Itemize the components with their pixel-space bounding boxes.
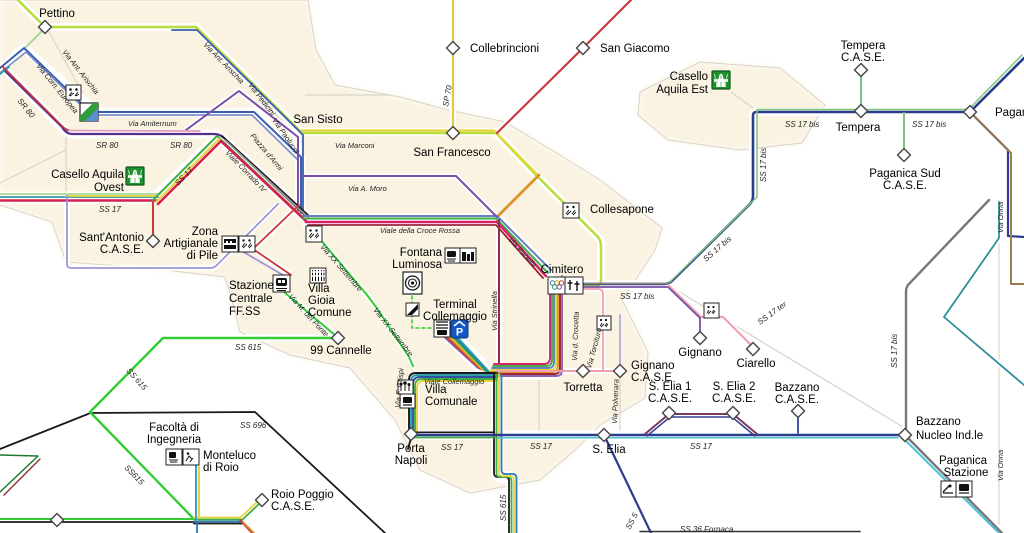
svg-text:Nucleo Ind.le: Nucleo Ind.le <box>916 430 983 442</box>
svg-text:Facoltà di: Facoltà di <box>149 422 199 434</box>
svg-text:S. Elia: S. Elia <box>592 444 626 456</box>
svg-text:C.A.S.E.: C.A.S.E. <box>775 394 819 406</box>
svg-text:Casello Aquila: Casello Aquila <box>51 169 124 181</box>
svg-text:Artigianale: Artigianale <box>164 238 218 250</box>
svg-text:Via A. Moro: Via A. Moro <box>348 184 387 193</box>
svg-text:S. Elia 1: S. Elia 1 <box>649 381 692 393</box>
svg-text:SS 17 bis: SS 17 bis <box>890 334 899 368</box>
svg-text:Via Onna: Via Onna <box>996 202 1005 233</box>
svg-text:SS 17: SS 17 <box>530 442 552 451</box>
svg-text:SS 17: SS 17 <box>690 442 712 451</box>
svg-text:Bazzano: Bazzano <box>916 416 961 428</box>
svg-text:Via d. Crocetta: Via d. Crocetta <box>570 311 581 361</box>
svg-text:C.A.S.E.: C.A.S.E. <box>841 52 885 64</box>
svg-text:SS 696: SS 696 <box>240 421 267 430</box>
svg-text:Via Polverara: Via Polverara <box>610 379 621 424</box>
svg-text:San Giacomo: San Giacomo <box>600 43 670 55</box>
svg-text:Aquila Est: Aquila Est <box>656 84 709 96</box>
svg-text:Roio Poggio: Roio Poggio <box>271 489 334 501</box>
svg-text:C.A.S.E.: C.A.S.E. <box>712 393 756 405</box>
svg-text:Stazione: Stazione <box>944 467 989 479</box>
svg-text:SS 17: SS 17 <box>99 205 121 214</box>
svg-text:Cimitero: Cimitero <box>541 264 584 276</box>
svg-text:Via Marconi: Via Marconi <box>335 141 375 150</box>
svg-text:Pettino: Pettino <box>39 8 75 20</box>
svg-text:Porta: Porta <box>397 443 425 455</box>
svg-text:Centrale: Centrale <box>229 293 272 305</box>
svg-text:Via Onna: Via Onna <box>996 450 1005 481</box>
svg-text:FF.SS: FF.SS <box>229 306 261 318</box>
svg-text:SS 17: SS 17 <box>441 443 463 452</box>
svg-text:Monteluco: Monteluco <box>203 450 256 462</box>
svg-text:Paganica: Paganica <box>939 455 988 467</box>
svg-text:Ciarello: Ciarello <box>737 358 776 370</box>
svg-text:C.A.S.E.: C.A.S.E. <box>883 180 927 192</box>
svg-text:Napoli: Napoli <box>395 455 428 467</box>
svg-text:Stazione: Stazione <box>229 280 274 292</box>
svg-text:Gioia: Gioia <box>308 295 335 307</box>
svg-text:di Pile: di Pile <box>187 250 218 262</box>
svg-text:San Francesco: San Francesco <box>413 147 490 159</box>
svg-text:Collebrincioni: Collebrincioni <box>470 43 539 55</box>
svg-text:Paganica: Paganica <box>995 107 1024 119</box>
svg-text:SS 17 bis: SS 17 bis <box>759 148 768 182</box>
svg-text:C.A.S.E.: C.A.S.E. <box>100 244 144 256</box>
svg-text:Sant'Antonio: Sant'Antonio <box>79 232 144 244</box>
svg-text:C.A.S.E.: C.A.S.E. <box>648 393 692 405</box>
svg-text:P: P <box>456 327 463 339</box>
svg-text:San Sisto: San Sisto <box>293 114 342 126</box>
svg-text:SS 17 bis: SS 17 bis <box>785 120 819 129</box>
svg-text:Zona: Zona <box>192 226 219 238</box>
svg-text:Tempera: Tempera <box>841 40 886 52</box>
svg-text:Fontana: Fontana <box>400 247 443 259</box>
svg-text:SR 80: SR 80 <box>170 141 193 150</box>
svg-text:SS 615: SS 615 <box>499 494 508 521</box>
svg-text:Via Amiternum: Via Amiternum <box>128 119 177 128</box>
svg-text:99 Cannelle: 99 Cannelle <box>310 345 371 357</box>
svg-text:Via Strinella: Via Strinella <box>490 291 499 331</box>
svg-text:Gignano: Gignano <box>631 360 674 372</box>
svg-text:SS 615: SS 615 <box>235 343 262 352</box>
svg-text:Ovest: Ovest <box>94 182 125 194</box>
svg-text:SR 80: SR 80 <box>96 141 119 150</box>
svg-text:Villa: Villa <box>308 283 330 295</box>
svg-text:SS 17 bis: SS 17 bis <box>912 120 946 129</box>
svg-text:Viale della Croce Rossa: Viale della Croce Rossa <box>380 226 460 235</box>
svg-text:Casello: Casello <box>670 71 708 83</box>
svg-text:S. Elia 2: S. Elia 2 <box>713 381 756 393</box>
svg-text:Tempera: Tempera <box>836 122 881 134</box>
svg-text:Ingegneria: Ingegneria <box>147 434 202 446</box>
svg-text:Gignano: Gignano <box>678 347 721 359</box>
svg-text:C.A.S.E.: C.A.S.E. <box>271 501 315 513</box>
svg-text:Bazzano: Bazzano <box>775 382 820 394</box>
svg-text:Collesapone: Collesapone <box>590 204 654 216</box>
svg-text:Comunale: Comunale <box>425 396 477 408</box>
svg-text:Paganica Sud: Paganica Sud <box>869 168 941 180</box>
svg-text:Terminal: Terminal <box>433 299 476 311</box>
svg-text:Collemaggio: Collemaggio <box>423 311 487 323</box>
svg-text:Luminosa: Luminosa <box>392 259 442 271</box>
svg-text:di Roio: di Roio <box>203 462 239 474</box>
svg-text:SS 17 bis: SS 17 bis <box>620 292 654 301</box>
svg-text:SS 36 Fornaca: SS 36 Fornaca <box>680 525 734 533</box>
svg-text:Viale Collemaggio: Viale Collemaggio <box>424 377 484 386</box>
svg-text:Torretta: Torretta <box>564 382 604 394</box>
